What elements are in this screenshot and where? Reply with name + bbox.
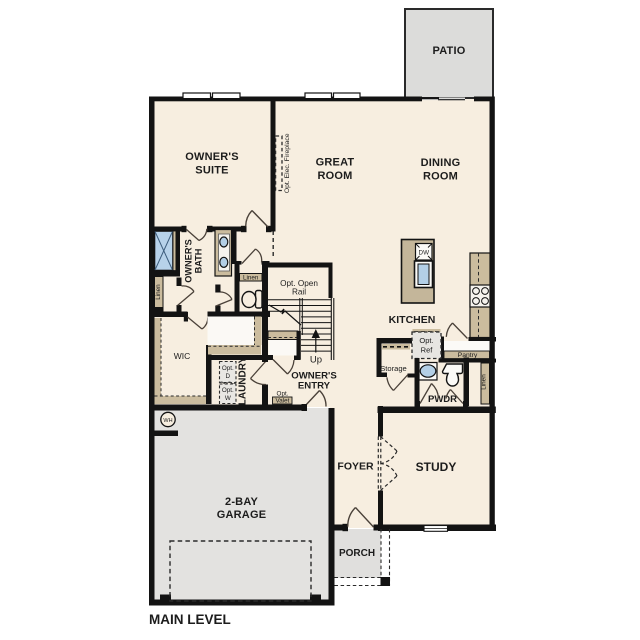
svg-text:DINING: DINING (421, 157, 461, 169)
svg-text:PATIO: PATIO (433, 45, 466, 57)
svg-text:Storage: Storage (380, 364, 407, 373)
svg-text:Opt.: Opt. (419, 336, 433, 345)
svg-text:Linen: Linen (155, 284, 162, 300)
svg-text:Opt.: Opt. (222, 387, 234, 394)
svg-text:STUDY: STUDY (416, 460, 457, 474)
svg-text:Up: Up (310, 355, 322, 366)
svg-text:Opt.: Opt. (222, 365, 234, 372)
svg-text:Opt. Elec. Fireplace: Opt. Elec. Fireplace (284, 133, 291, 193)
svg-text:W: W (225, 395, 231, 402)
svg-text:Linen: Linen (481, 374, 488, 390)
svg-text:WH: WH (163, 418, 172, 424)
svg-text:OWNER'S: OWNER'S (184, 239, 194, 283)
svg-text:WIC: WIC (174, 351, 191, 361)
svg-text:Ref: Ref (421, 346, 434, 355)
svg-text:BATH: BATH (194, 248, 204, 273)
svg-text:Linen: Linen (243, 275, 259, 282)
svg-text:Valet: Valet (276, 398, 290, 405)
svg-text:ROOM: ROOM (317, 170, 352, 182)
svg-text:Opt.: Opt. (277, 391, 289, 398)
svg-text:LAUNDRY: LAUNDRY (238, 356, 249, 405)
svg-text:PORCH: PORCH (339, 548, 375, 559)
svg-text:ROOM: ROOM (423, 171, 458, 183)
svg-text:2-BAY: 2-BAY (225, 496, 258, 508)
svg-text:D: D (226, 373, 231, 380)
svg-text:GARAGE: GARAGE (217, 509, 266, 521)
svg-text:ENTRY: ENTRY (298, 381, 331, 392)
svg-text:Rail: Rail (292, 288, 306, 297)
svg-text:MAIN LEVEL: MAIN LEVEL (149, 612, 231, 627)
svg-text:OWNER'S: OWNER'S (185, 151, 239, 163)
svg-text:GREAT: GREAT (316, 157, 355, 169)
svg-text:SUITE: SUITE (195, 165, 228, 177)
svg-text:KITCHEN: KITCHEN (389, 314, 436, 326)
svg-text:FOYER: FOYER (337, 461, 374, 473)
svg-text:DW: DW (419, 250, 430, 257)
svg-text:PWDR: PWDR (428, 394, 457, 405)
